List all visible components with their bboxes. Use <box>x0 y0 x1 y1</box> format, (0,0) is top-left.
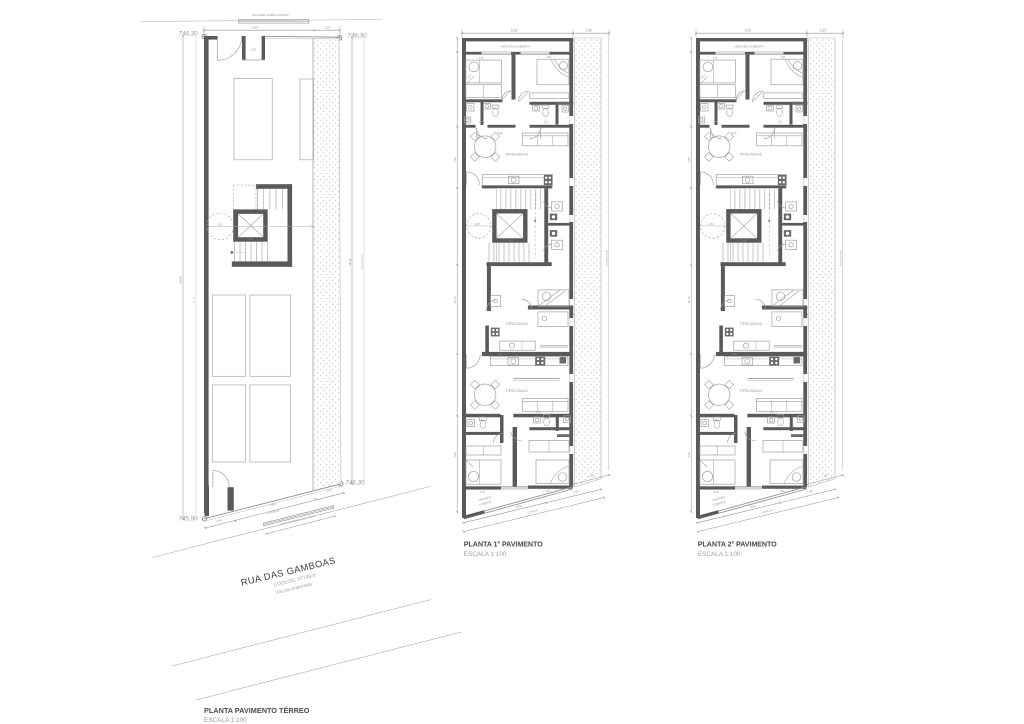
svg-text:2,45: 2,45 <box>770 412 775 414</box>
svg-text:2,78: 2,78 <box>714 491 719 494</box>
svg-text:7,08: 7,08 <box>687 452 691 458</box>
svg-text:8,28: 8,28 <box>252 26 258 30</box>
svg-text:TIPOLOGIA 04: TIPOLOGIA 04 <box>740 389 762 393</box>
svg-text:2,11: 2,11 <box>544 121 549 123</box>
svg-text:7,50: 7,50 <box>687 157 691 163</box>
svg-text:1,40: 1,40 <box>479 121 484 123</box>
svg-text:4,90: 4,90 <box>732 354 737 356</box>
svg-text:1,50: 1,50 <box>820 29 826 33</box>
svg-text:2,11: 2,11 <box>778 121 783 123</box>
svg-text:2,45: 2,45 <box>536 412 541 414</box>
svg-text:4,90: 4,90 <box>498 354 503 356</box>
svg-text:1,50: 1,50 <box>474 222 480 226</box>
svg-text:VARANDA COBERTA: VARANDA COBERTA <box>500 45 529 49</box>
svg-text:1,50: 1,50 <box>708 222 714 226</box>
svg-text:4,90: 4,90 <box>732 132 737 135</box>
svg-text:4,90: 4,90 <box>498 132 503 135</box>
svg-text:RUA SEM SAIDA (14,00m): RUA SEM SAIDA (14,00m) <box>253 13 289 17</box>
svg-text:1,40: 1,40 <box>479 420 484 422</box>
svg-text:TIPOLOGIA 03: TIPOLOGIA 03 <box>506 153 528 157</box>
svg-text:TIPOLOGIA 01: TIPOLOGIA 01 <box>506 389 528 393</box>
svg-text:1,50: 1,50 <box>218 223 223 226</box>
svg-text:27,10: 27,10 <box>192 296 196 303</box>
svg-text:levantamento: levantamento <box>360 254 364 270</box>
svg-text:2,60: 2,60 <box>546 490 551 493</box>
svg-text:746,30: 746,30 <box>179 31 198 38</box>
svg-text:2,64: 2,64 <box>547 56 552 59</box>
svg-text:2,60: 2,60 <box>780 490 785 493</box>
svg-text:TIPOLOGIA 06: TIPOLOGIA 06 <box>740 153 762 157</box>
svg-text:2,78: 2,78 <box>713 57 718 60</box>
svg-text:1,40: 1,40 <box>713 420 718 422</box>
svg-text:levantamento: levantamento <box>605 249 609 266</box>
svg-text:26,10: 26,10 <box>687 296 691 303</box>
svg-text:PLANTA PAVIMENTO TÉRREO: PLANTA PAVIMENTO TÉRREO <box>204 706 310 715</box>
svg-text:1,63: 1,63 <box>248 238 253 241</box>
svg-text:6,38: 6,38 <box>745 29 751 33</box>
svg-text:1,50: 1,50 <box>324 26 330 30</box>
svg-text:1,50: 1,50 <box>586 29 592 33</box>
svg-text:VARANDA COBERTA: VARANDA COBERTA <box>734 45 763 49</box>
svg-text:TIPOLOGIA 05: TIPOLOGIA 05 <box>740 322 762 326</box>
svg-text:PLANTA 2° PAVIMENTO: PLANTA 2° PAVIMENTO <box>698 539 777 548</box>
svg-text:48,40: 48,40 <box>179 276 183 284</box>
svg-text:2,78: 2,78 <box>479 57 484 60</box>
svg-text:745,90: 745,90 <box>179 516 198 523</box>
svg-text:LIXO: LIXO <box>251 49 257 52</box>
svg-text:ESCALA 1:100: ESCALA 1:100 <box>464 551 507 558</box>
svg-text:PLANTA 1° PAVIMENTO: PLANTA 1° PAVIMENTO <box>464 539 543 548</box>
svg-text:2,64: 2,64 <box>781 56 786 59</box>
svg-text:levantamento: levantamento <box>839 249 843 266</box>
svg-text:TIPOLOGIA 02: TIPOLOGIA 02 <box>506 322 528 326</box>
svg-text:48,40: 48,40 <box>348 258 352 266</box>
svg-text:746,30: 746,30 <box>346 480 365 487</box>
svg-text:7,08: 7,08 <box>453 452 457 458</box>
svg-text:7,50: 7,50 <box>453 157 457 163</box>
svg-text:6,38: 6,38 <box>511 29 517 33</box>
svg-text:26,10: 26,10 <box>453 296 457 303</box>
svg-text:ESCALA 1:100: ESCALA 1:100 <box>698 551 741 558</box>
svg-text:1,40: 1,40 <box>713 121 718 123</box>
svg-text:2,78: 2,78 <box>480 491 485 494</box>
svg-text:1,63: 1,63 <box>508 240 513 243</box>
svg-text:ESCALA 1:100: ESCALA 1:100 <box>204 717 247 724</box>
svg-text:1,63: 1,63 <box>742 240 747 243</box>
